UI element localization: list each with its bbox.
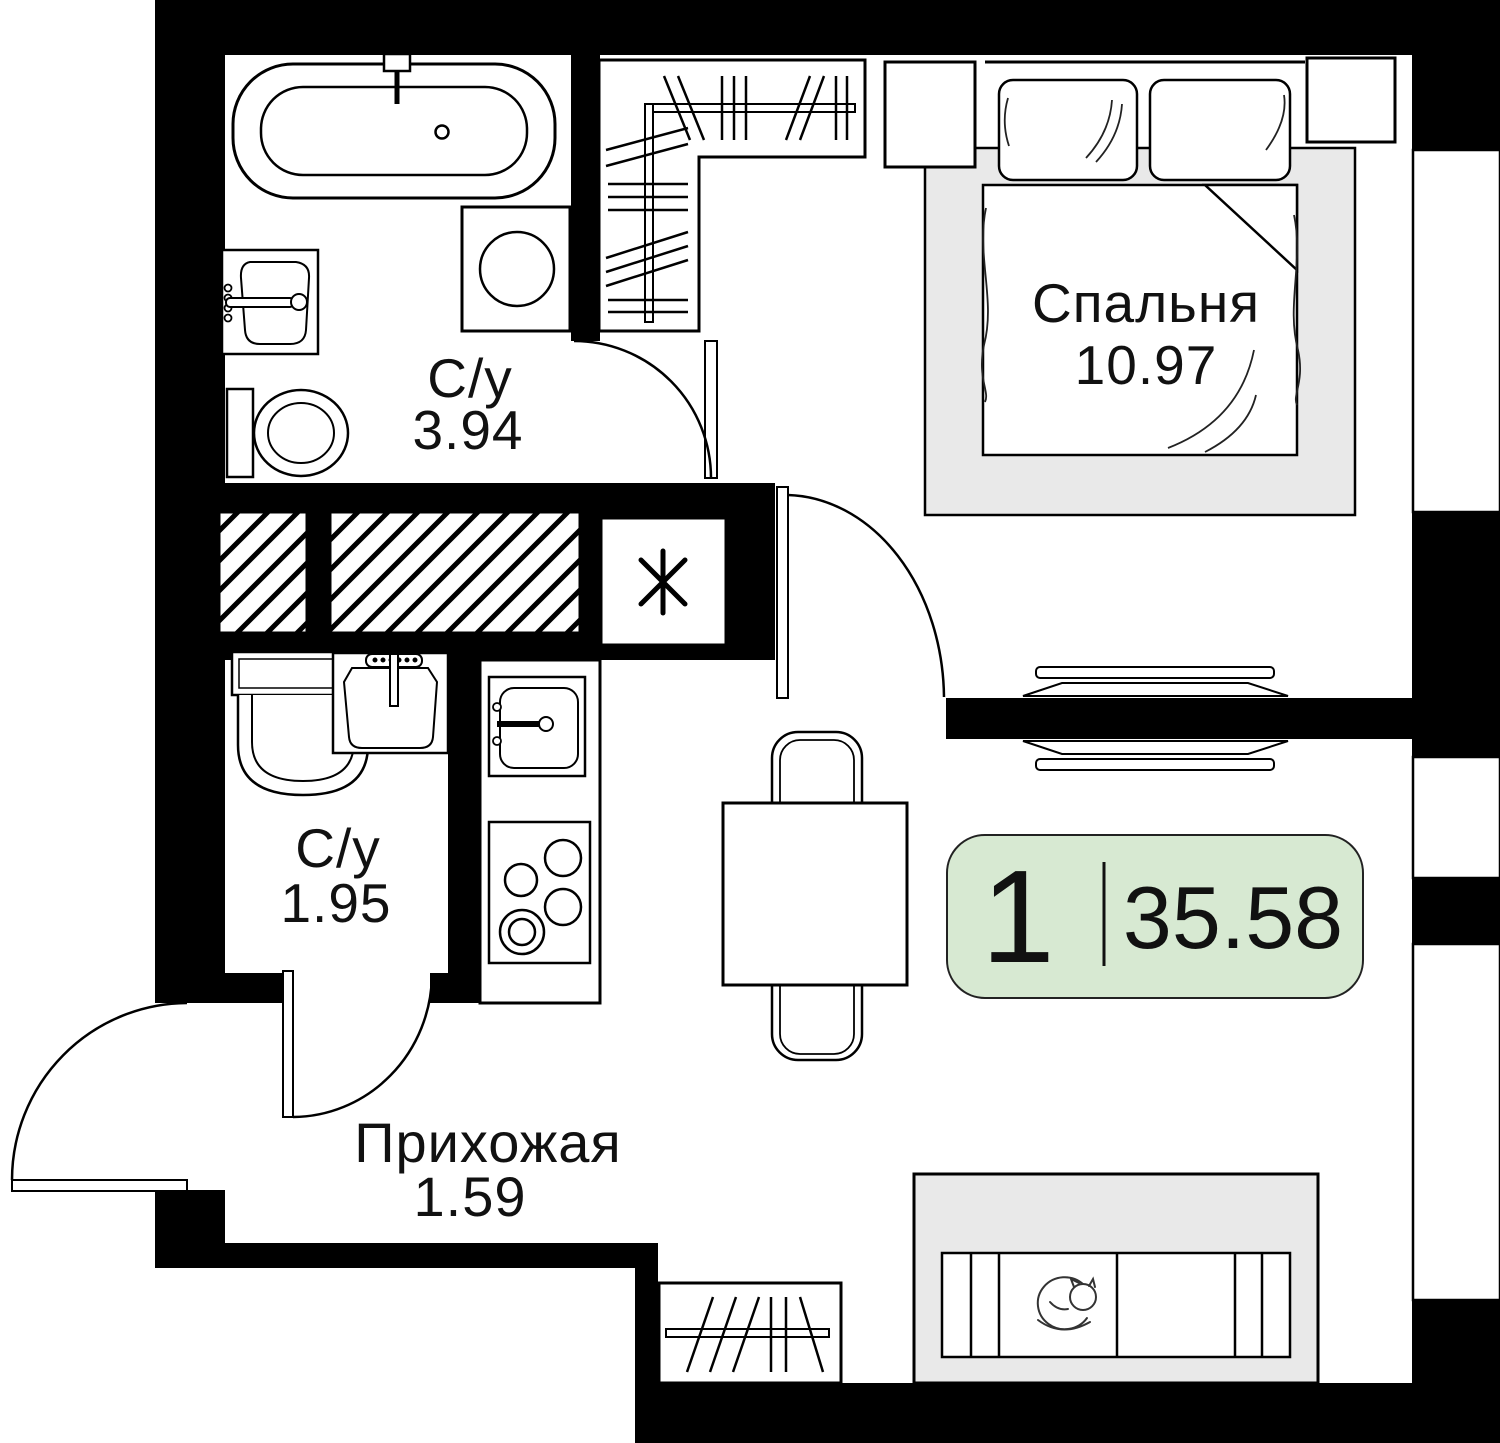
sink-bathroom-top [222, 250, 318, 354]
shaft-hatch-icon [330, 512, 580, 633]
faucet-icon [226, 298, 294, 307]
tv-living-icon [1023, 741, 1288, 754]
stove [489, 822, 590, 963]
nightstand-right [1307, 58, 1395, 142]
wall-bottom-left [155, 1243, 658, 1268]
kitchen-counter [480, 660, 600, 1003]
tv-bedroom-icon [1023, 683, 1288, 696]
wardrobe-bottom [659, 1283, 841, 1383]
washing-machine [462, 207, 570, 331]
door-entrance [12, 1003, 187, 1191]
window-living-small [1413, 757, 1500, 878]
wardrobe-top [599, 60, 865, 331]
wall-bedroom-divider [946, 698, 1412, 739]
room-hallway-label: Прихожая 1.59 [354, 1111, 622, 1228]
sofa [914, 1174, 1318, 1383]
badge-room-count: 1 [981, 843, 1054, 990]
toilet-bathroom-top [227, 389, 348, 477]
door-bathroom-top [574, 341, 717, 478]
wall-top [155, 0, 1500, 55]
table [723, 803, 907, 985]
sink-bathroom-bottom [333, 653, 448, 753]
badge-total-area: 35.58 [1123, 868, 1343, 967]
fridge [601, 518, 726, 645]
ventilation-shafts [219, 512, 580, 633]
wall-bottom-step [635, 1268, 658, 1443]
wall-bath-bottom-a [225, 973, 287, 1003]
pillow [1150, 80, 1290, 180]
room-bathroom-bottom-label: С/у 1.95 [280, 817, 391, 934]
window-bedroom-right [1413, 150, 1500, 512]
window-living-large [1413, 944, 1500, 1300]
shaft-hatch-icon [219, 512, 307, 633]
bathtub [233, 54, 555, 198]
room-name: С/у [295, 817, 381, 879]
room-area: 10.97 [1075, 334, 1218, 396]
room-area: 1.59 [414, 1165, 527, 1228]
nightstand-left [885, 62, 975, 167]
apartment-badge: 1 35.58 [947, 835, 1363, 998]
room-area: 1.95 [280, 872, 391, 934]
door-bathroom-bottom [283, 971, 432, 1117]
dining-set [723, 732, 907, 1060]
room-bathroom-top-label: С/у 3.94 [412, 347, 523, 461]
floor-plan: Спальня 10.97 С/у 3.94 С/у 1.95 Прихожая… [0, 0, 1500, 1443]
door-bedroom [777, 487, 944, 698]
wall-bathroom-closet [571, 55, 600, 341]
room-area: 3.94 [412, 399, 523, 461]
room-name: Спальня [1032, 272, 1260, 334]
wall-bottom [658, 1383, 1500, 1443]
wall-kitchen-bath [448, 655, 480, 1003]
kitchen-sink [489, 677, 585, 776]
bathtub-faucet-icon [384, 54, 410, 71]
